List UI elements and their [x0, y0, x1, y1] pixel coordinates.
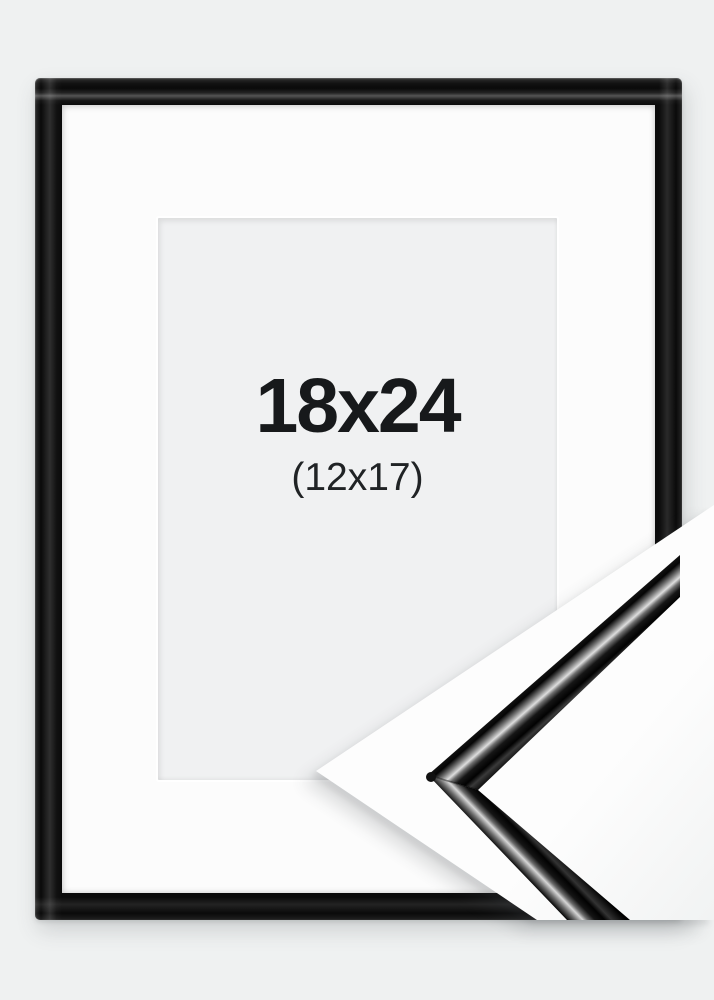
mat-aperture: 18x24 (12x17): [158, 218, 557, 780]
frame-size-label: 18x24: [255, 368, 459, 445]
picture-frame: 18x24 (12x17): [35, 78, 682, 920]
frame-rail-top: [35, 78, 682, 105]
product-photo: 18x24 (12x17): [0, 0, 714, 1000]
frame-rail-left: [35, 78, 62, 920]
frame-rail-bottom: [35, 893, 682, 920]
mat-board: 18x24 (12x17): [62, 105, 655, 893]
matted-size-label: (12x17): [291, 458, 423, 497]
frame-rail-right: [655, 78, 682, 920]
